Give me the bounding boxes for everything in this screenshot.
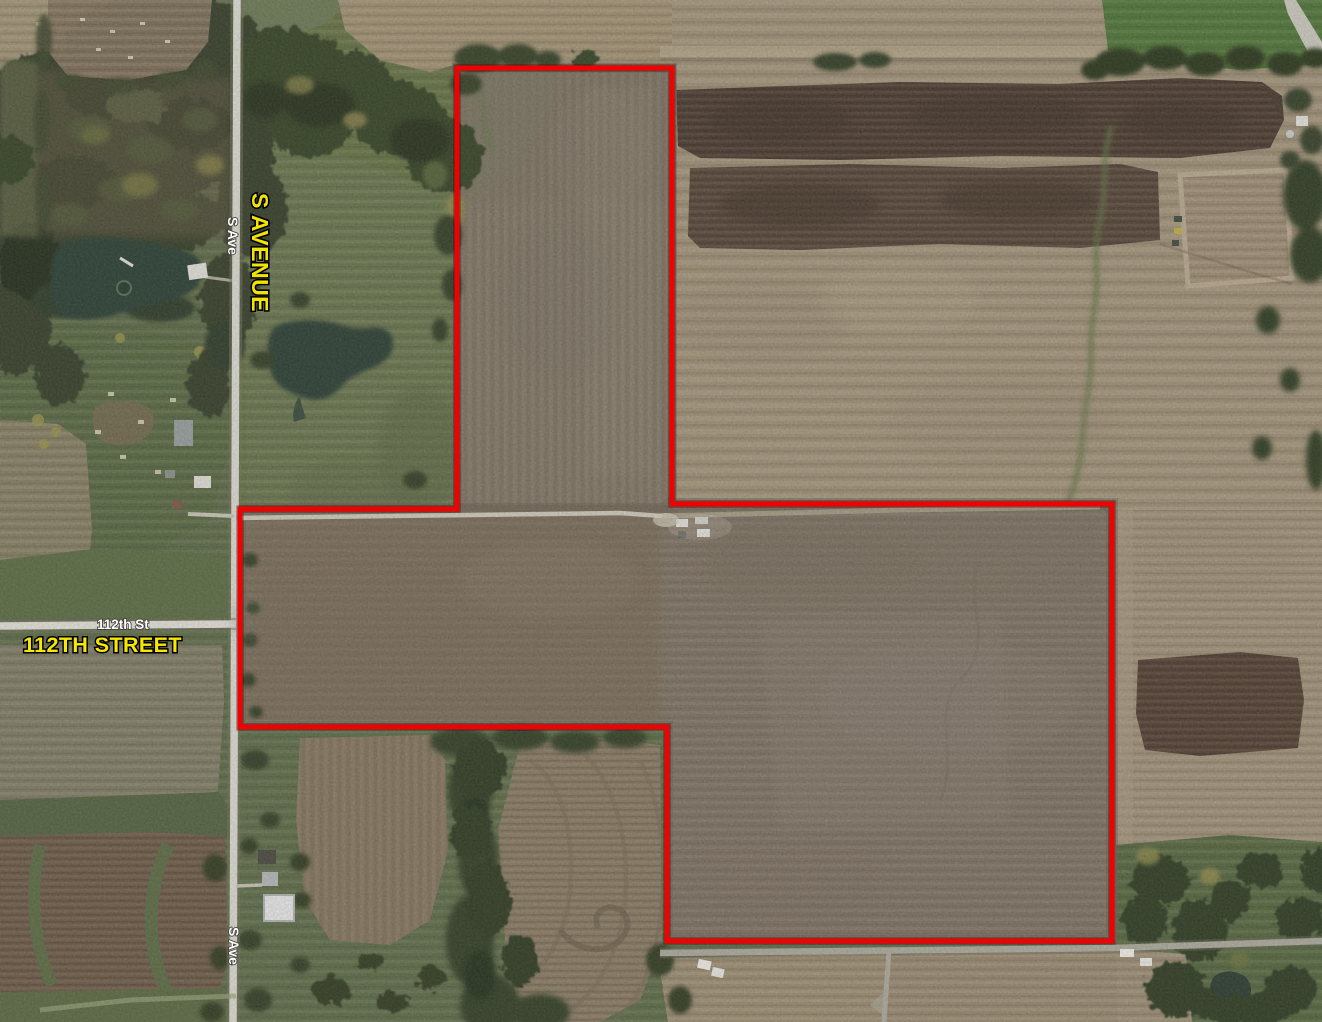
svg-text:S Ave: S Ave <box>225 217 241 255</box>
svg-text:S AVENUE: S AVENUE <box>247 193 273 312</box>
svg-text:112TH STREET: 112TH STREET <box>23 633 182 657</box>
svg-text:112th St: 112th St <box>97 617 149 632</box>
svg-text:S Ave: S Ave <box>226 927 242 965</box>
